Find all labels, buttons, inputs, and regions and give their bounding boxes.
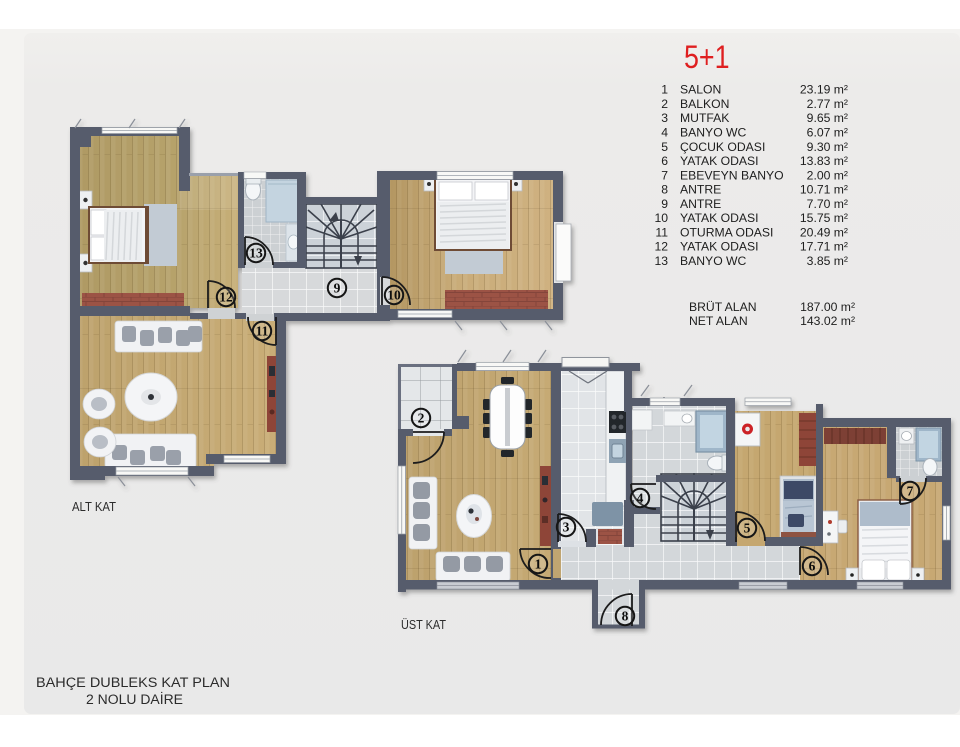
svg-text:2.77 m²: 2.77 m² bbox=[807, 97, 848, 111]
svg-text:9.30 m²: 9.30 m² bbox=[807, 140, 848, 154]
svg-text:6: 6 bbox=[661, 154, 668, 168]
svg-text:3: 3 bbox=[563, 520, 570, 535]
svg-text:OTURMA ODASI: OTURMA ODASI bbox=[680, 225, 773, 239]
svg-text:23.19 m²: 23.19 m² bbox=[800, 83, 848, 97]
svg-text:BANYO WC: BANYO WC bbox=[680, 126, 747, 140]
svg-text:12: 12 bbox=[219, 290, 233, 305]
svg-text:ALT KAT: ALT KAT bbox=[72, 499, 116, 514]
svg-text:YATAK ODASI: YATAK ODASI bbox=[680, 211, 759, 225]
svg-text:13: 13 bbox=[249, 246, 263, 261]
svg-text:2 NOLU DAİRE: 2 NOLU DAİRE bbox=[86, 692, 183, 707]
svg-text:7: 7 bbox=[907, 484, 914, 499]
svg-text:17.71 m²: 17.71 m² bbox=[800, 240, 848, 254]
svg-text:12: 12 bbox=[654, 240, 668, 254]
svg-text:9: 9 bbox=[661, 197, 668, 211]
svg-text:2: 2 bbox=[661, 97, 668, 111]
svg-text:ÇOCUK ODASI: ÇOCUK ODASI bbox=[680, 140, 765, 154]
svg-text:10: 10 bbox=[654, 211, 668, 225]
svg-text:5: 5 bbox=[744, 521, 751, 536]
svg-text:7.70 m²: 7.70 m² bbox=[807, 197, 848, 211]
svg-text:11: 11 bbox=[655, 225, 668, 239]
svg-text:1: 1 bbox=[535, 557, 542, 572]
svg-text:BALKON: BALKON bbox=[680, 97, 729, 111]
svg-text:15.75 m²: 15.75 m² bbox=[800, 211, 848, 225]
svg-text:5: 5 bbox=[661, 140, 668, 154]
svg-text:YATAK ODASI: YATAK ODASI bbox=[680, 154, 759, 168]
svg-text:4: 4 bbox=[661, 126, 668, 140]
svg-text:9: 9 bbox=[334, 281, 341, 296]
svg-text:7: 7 bbox=[661, 168, 668, 182]
svg-text:ÜST KAT: ÜST KAT bbox=[401, 617, 446, 632]
svg-text:6.07 m²: 6.07 m² bbox=[807, 126, 848, 140]
svg-text:143.02 m²: 143.02 m² bbox=[800, 314, 855, 328]
svg-text:ANTRE: ANTRE bbox=[680, 183, 721, 197]
svg-text:MUTFAK: MUTFAK bbox=[680, 111, 729, 125]
svg-text:8: 8 bbox=[622, 609, 629, 624]
svg-text:NET ALAN: NET ALAN bbox=[689, 314, 748, 328]
svg-text:3: 3 bbox=[661, 111, 668, 125]
svg-text:EBEVEYN BANYO: EBEVEYN BANYO bbox=[680, 168, 784, 182]
svg-text:SALON: SALON bbox=[680, 83, 721, 97]
svg-text:BANYO WC: BANYO WC bbox=[680, 254, 747, 268]
svg-text:10.71 m²: 10.71 m² bbox=[800, 183, 848, 197]
svg-text:187.00 m²: 187.00 m² bbox=[800, 300, 855, 314]
svg-text:ANTRE: ANTRE bbox=[680, 197, 721, 211]
svg-text:2.00 m²: 2.00 m² bbox=[807, 168, 848, 182]
svg-text:5+1: 5+1 bbox=[684, 39, 730, 75]
svg-text:13.83 m²: 13.83 m² bbox=[800, 154, 848, 168]
svg-text:20.49 m²: 20.49 m² bbox=[800, 225, 848, 239]
svg-text:BRÜT ALAN: BRÜT ALAN bbox=[689, 300, 757, 314]
svg-text:BAHÇE DUBLEKS KAT PLAN: BAHÇE DUBLEKS KAT PLAN bbox=[36, 675, 230, 690]
svg-text:YATAK ODASI: YATAK ODASI bbox=[680, 240, 759, 254]
svg-text:13: 13 bbox=[654, 254, 668, 268]
svg-text:4: 4 bbox=[637, 491, 644, 506]
svg-text:8: 8 bbox=[661, 183, 668, 197]
svg-text:1: 1 bbox=[661, 83, 668, 97]
svg-text:11: 11 bbox=[256, 324, 269, 339]
svg-text:9.65 m²: 9.65 m² bbox=[807, 111, 848, 125]
svg-text:3.85 m²: 3.85 m² bbox=[807, 254, 848, 268]
svg-text:6: 6 bbox=[809, 559, 816, 574]
svg-text:10: 10 bbox=[387, 288, 401, 303]
svg-text:2: 2 bbox=[418, 411, 425, 426]
